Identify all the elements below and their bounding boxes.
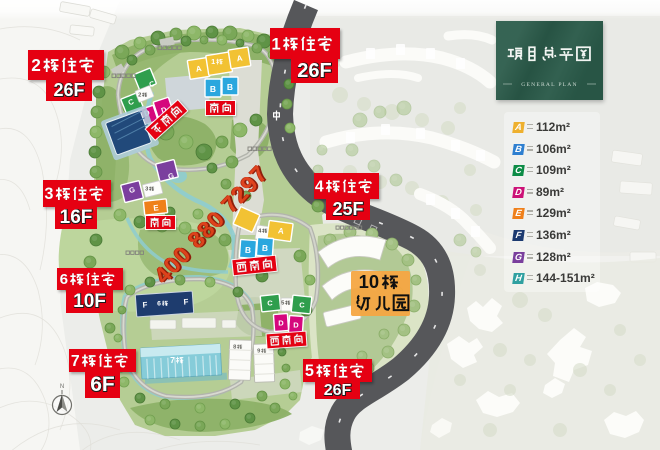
svg-text:N: N	[60, 384, 64, 390]
svg-text:D: D	[293, 321, 299, 330]
svg-text:3: 3	[44, 185, 53, 203]
svg-text:6: 6	[60, 271, 68, 288]
svg-text:10: 10	[359, 271, 379, 292]
svg-text:2: 2	[31, 55, 41, 75]
svg-text:GENERAL PLAN: GENERAL PLAN	[521, 82, 578, 88]
svg-text:B: B	[210, 84, 216, 94]
svg-text:6: 6	[157, 301, 161, 308]
svg-text:D: D	[278, 319, 284, 328]
svg-text:4: 4	[315, 178, 324, 195]
svg-text:7: 7	[71, 353, 80, 370]
svg-text:1: 1	[211, 57, 215, 66]
svg-text:B: B	[262, 243, 269, 253]
svg-text:5: 5	[305, 362, 314, 380]
svg-text:C: C	[267, 299, 273, 308]
svg-text:F: F	[142, 300, 148, 309]
svg-text:B: B	[227, 82, 233, 92]
svg-text:2: 2	[138, 93, 141, 99]
svg-text:C: C	[299, 301, 305, 310]
svg-text:F: F	[183, 297, 189, 306]
svg-text:B: B	[245, 245, 252, 255]
svg-text:1: 1	[271, 34, 280, 53]
svg-text:7: 7	[170, 355, 175, 365]
